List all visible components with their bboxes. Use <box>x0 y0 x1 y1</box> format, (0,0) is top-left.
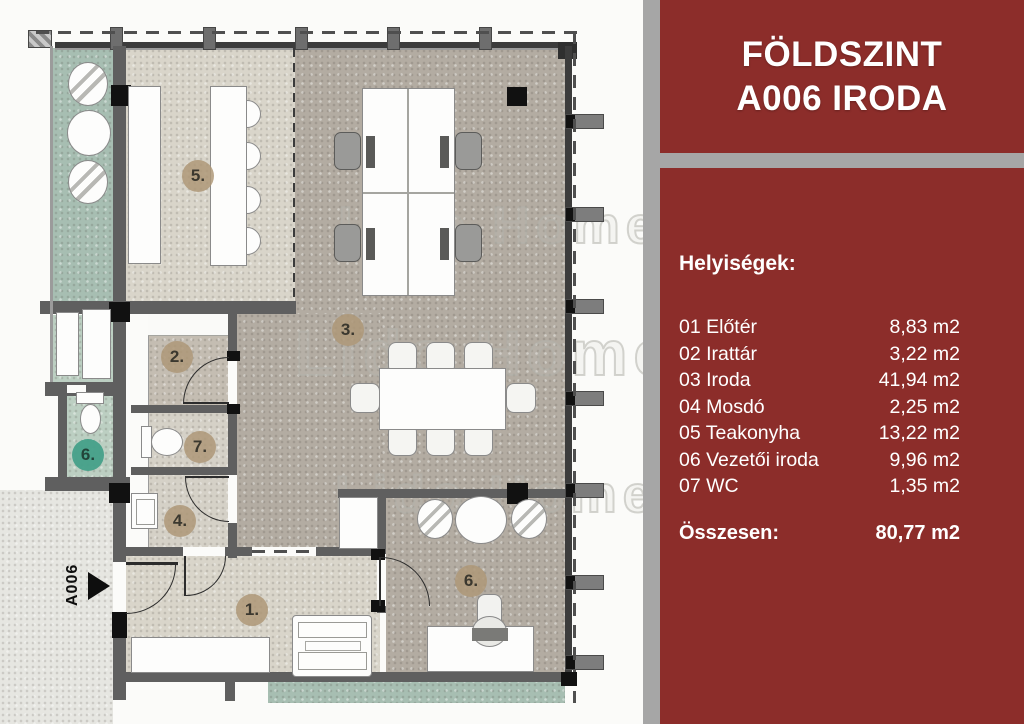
meeting-table <box>379 368 506 430</box>
entrance-arrow-icon <box>88 572 110 600</box>
total-label: Összesen: <box>679 520 779 546</box>
monitor <box>472 628 508 641</box>
facade-fin <box>565 114 604 129</box>
office-chair <box>334 224 361 262</box>
room-2-wardrobe <box>148 313 228 336</box>
cabinet <box>56 312 79 376</box>
room-badge: 3. <box>332 314 364 346</box>
cabinet <box>339 497 378 549</box>
room-info-box: Helyiségek: 01 Előtér 8,83 m2 02 Irattár… <box>660 168 1024 724</box>
room-row: 04 Mosdó 2,25 m2 <box>660 394 1024 421</box>
title-box: FÖLDSZINT A006 IRODA <box>660 0 1024 153</box>
room-label: 03 Iroda <box>679 367 751 394</box>
kitchen-counter <box>128 86 161 264</box>
door-hinge-block <box>227 404 240 414</box>
cabinet <box>82 309 111 379</box>
facade-fin <box>565 207 604 222</box>
column <box>109 483 130 503</box>
printer-tray <box>298 622 367 638</box>
desk-divider <box>363 192 454 194</box>
toilet-bowl <box>151 428 183 456</box>
round-table <box>455 496 507 544</box>
room3-door-opening <box>183 547 225 556</box>
lounge-chair <box>68 160 108 204</box>
room-area: 1,35 m2 <box>890 473 960 500</box>
toilet-bowl <box>80 404 101 434</box>
room4-door-opening <box>228 475 237 523</box>
room-area: 41,94 m2 <box>879 367 960 394</box>
room-badge: 1. <box>236 594 268 626</box>
office-chair <box>334 132 361 170</box>
office-chair <box>455 224 482 262</box>
facade-fin <box>565 483 604 498</box>
terrace-edge-line <box>50 46 53 382</box>
room-area: 8,83 m2 <box>890 314 960 341</box>
monitor <box>366 228 375 260</box>
wall-room2-room7 <box>131 405 228 413</box>
room-label: 06 Vezetői iroda <box>679 447 819 474</box>
lounge-chair <box>417 499 453 539</box>
room5-room3-open-boundary <box>293 48 295 303</box>
roofline-dashed-top <box>36 31 578 34</box>
wall-neighbour-left <box>58 383 67 489</box>
entrance-opening <box>113 562 126 612</box>
room-list: 01 Előtér 8,83 m2 02 Irattár 3,22 m2 03 … <box>660 314 1024 500</box>
room-badge-neighbour: 6. <box>72 439 104 471</box>
room-row: 02 Irattár 3,22 m2 <box>660 341 1024 368</box>
total-area: 80,77 m2 <box>875 520 960 546</box>
room-label: 07 WC <box>679 473 739 500</box>
room-row: 06 Vezetői iroda 9,96 m2 <box>660 447 1024 474</box>
terrace-band-bottom <box>268 682 565 703</box>
rooms-heading: Helyiségek: <box>679 252 796 276</box>
column <box>109 302 130 322</box>
room-badge: 4. <box>164 505 196 537</box>
column <box>507 87 527 106</box>
room-label: 02 Irattár <box>679 341 757 368</box>
room-badge: 5. <box>182 160 214 192</box>
column <box>112 612 127 638</box>
room-row: 05 Teakonyha 13,22 m2 <box>660 420 1024 447</box>
roofline-dashed-right <box>573 31 576 703</box>
wall-below-bottom <box>225 682 235 701</box>
meeting-chair <box>506 383 536 413</box>
printer-tray <box>298 652 367 670</box>
wall-room7-room4 <box>131 467 228 475</box>
room-badge: 7. <box>184 431 216 463</box>
room-row: 07 WC 1,35 m2 <box>660 473 1024 500</box>
facade-fin <box>565 391 604 406</box>
room2-door-opening <box>228 355 237 405</box>
kitchen-table <box>210 86 247 266</box>
room-area: 13,22 m2 <box>879 420 960 447</box>
round-table <box>67 110 111 156</box>
sideboard <box>131 637 270 673</box>
facade-fin <box>565 655 604 670</box>
room-area: 3,22 m2 <box>890 341 960 368</box>
wall-dashed-segment <box>252 550 316 553</box>
meeting-chair <box>350 383 380 413</box>
sink-basin <box>136 499 155 525</box>
facade-fin <box>565 299 604 314</box>
room-row: 03 Iroda 41,94 m2 <box>660 367 1024 394</box>
room-row: 01 Előtér 8,83 m2 <box>660 314 1024 341</box>
entrance-unit-label: A006 <box>64 556 90 614</box>
title-line-2: A006 IRODA <box>736 77 947 121</box>
lounge-chair <box>511 499 547 539</box>
facade-fin <box>565 575 604 590</box>
room-label: 05 Teakonyha <box>679 420 800 447</box>
room2-door-leaf <box>183 402 229 404</box>
office-chair <box>455 132 482 170</box>
monitor <box>440 136 449 168</box>
room-badge: 6. <box>455 565 487 597</box>
top-window-band-inner <box>55 48 572 50</box>
room-badge: 2. <box>161 341 193 373</box>
room-label: 01 Előtér <box>679 314 757 341</box>
room-area: 2,25 m2 <box>890 394 960 421</box>
printer-body-line <box>305 641 361 651</box>
info-panel: FÖLDSZINT A006 IRODA Helyiségek: 01 Előt… <box>643 0 1024 724</box>
exterior-paving <box>0 490 113 724</box>
room-label: 04 Mosdó <box>679 394 765 421</box>
floor-plan: Lido Home Lido Home Lido Home <box>0 0 643 724</box>
toilet-tank <box>76 392 104 404</box>
lounge-chair <box>68 62 108 106</box>
monitor <box>366 136 375 168</box>
title-line-1: FÖLDSZINT <box>742 33 943 77</box>
room-area: 9,96 m2 <box>890 447 960 474</box>
monitor <box>440 228 449 260</box>
total-row: Összesen: 80,77 m2 <box>660 520 1024 546</box>
room4-door-leaf <box>185 476 229 478</box>
corner-block <box>561 672 577 686</box>
